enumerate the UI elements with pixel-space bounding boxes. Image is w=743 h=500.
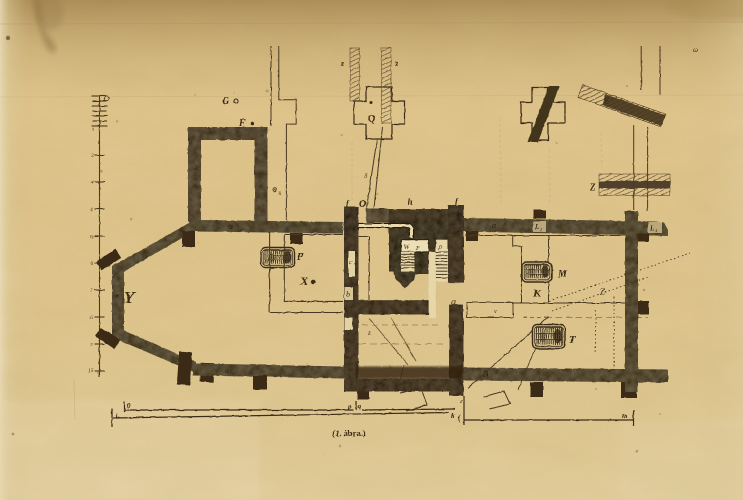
svg-text:7: 7 (90, 288, 93, 294)
svg-text:L₁: L₁ (649, 224, 657, 233)
svg-text:c: c (350, 259, 353, 266)
svg-text:k: k (451, 411, 455, 420)
svg-text:b: b (346, 290, 350, 299)
svg-text:E: E (603, 96, 609, 105)
svg-text:α: α (403, 275, 407, 282)
svg-text:6: 6 (90, 261, 93, 267)
svg-text:4: 4 (90, 206, 93, 213)
svg-text:4: 4 (91, 179, 94, 186)
svg-text:d: d (347, 328, 351, 336)
svg-text:G: G (222, 96, 230, 107)
svg-text:15: 15 (88, 368, 94, 374)
svg-text:O: O (359, 199, 366, 210)
svg-text:ω: ω (693, 46, 698, 54)
svg-text:m: m (622, 412, 628, 420)
svg-text:a: a (225, 366, 229, 375)
svg-text:(: ( (458, 413, 461, 423)
svg-text:M: M (557, 269, 568, 280)
svg-text:Y: Y (124, 288, 136, 307)
svg-text:z: z (367, 329, 371, 337)
svg-text:p: p (347, 402, 352, 411)
svg-text:K: K (532, 286, 542, 300)
svg-text:P: P (297, 252, 304, 263)
svg-text:6: 6 (90, 315, 93, 321)
svg-text:X: X (299, 274, 309, 288)
svg-text:W: W (404, 243, 411, 252)
svg-text:0: 0 (127, 402, 131, 410)
svg-text:(1. ábra.): (1. ábra.) (332, 428, 365, 438)
svg-text:Q: Q (368, 114, 375, 125)
svg-text:2: 2 (91, 153, 94, 159)
svg-text:a: a (229, 222, 233, 231)
svg-text:F: F (238, 118, 246, 129)
svg-text:L₁: L₁ (534, 223, 542, 232)
svg-text:q: q (358, 402, 362, 411)
svg-text:h: h (408, 197, 413, 207)
svg-text:ρ: ρ (438, 243, 443, 251)
svg-text:s: s (92, 126, 94, 132)
svg-text:ts: ts (90, 234, 94, 240)
svg-text:5: 5 (90, 342, 93, 348)
svg-text:i: i (115, 413, 117, 421)
svg-text:Z: Z (589, 182, 596, 192)
svg-text:a: a (492, 221, 496, 230)
